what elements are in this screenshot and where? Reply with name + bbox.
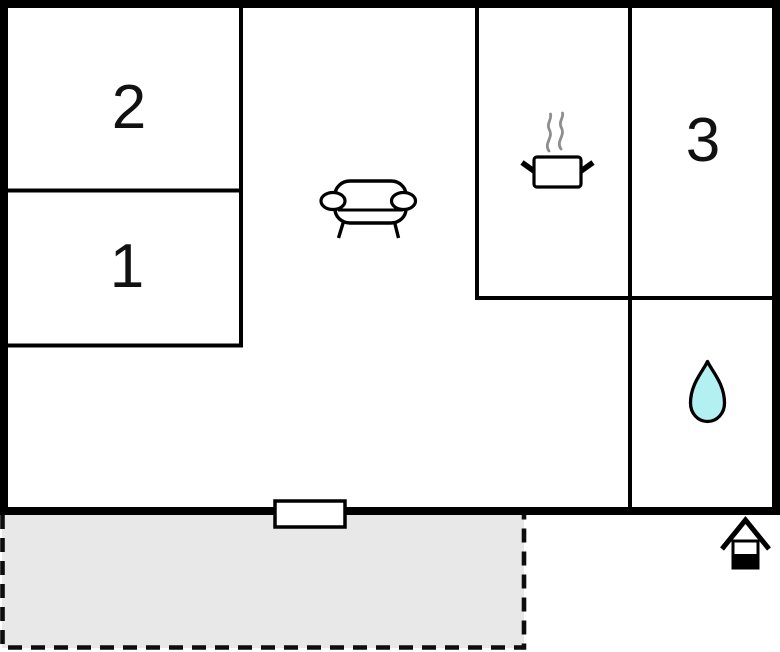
floorplan-drawing: 2 1 3: [0, 0, 780, 652]
terrace-area: [2, 514, 524, 648]
sofa-armrest-left: [321, 193, 345, 210]
sofa-armrest-right: [392, 193, 416, 210]
pot-body: [534, 157, 581, 187]
floorplan-canvas: 2 1 3: [0, 0, 780, 652]
room-label-1: 1: [110, 232, 144, 301]
terrace-fill: [2, 514, 524, 648]
room-label-3: 3: [686, 106, 720, 175]
house-icon: [722, 520, 769, 570]
room-label-2: 2: [112, 73, 146, 142]
window-marker: [275, 501, 345, 527]
house-body-lower: [732, 554, 760, 570]
